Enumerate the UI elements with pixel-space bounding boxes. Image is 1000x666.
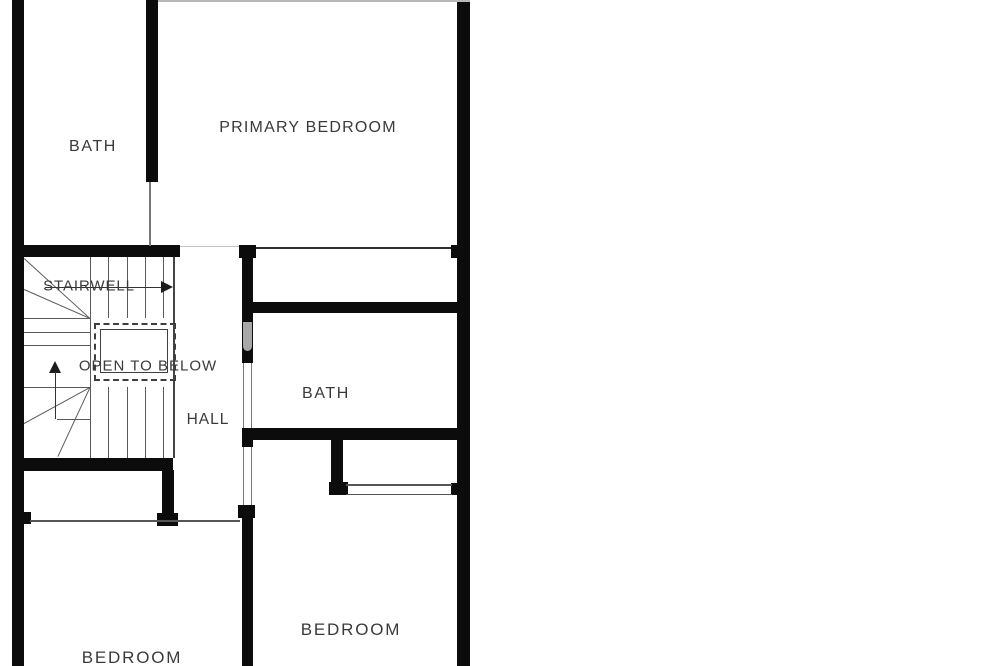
hall-primary-door-line xyxy=(180,246,239,247)
top-wall-remnant xyxy=(146,0,470,2)
wall-bedroom-right-jamb xyxy=(451,483,461,495)
hall-opening-line-b xyxy=(251,447,252,505)
stair-tread xyxy=(127,387,128,458)
wall-closet-stub xyxy=(331,440,343,484)
stair-tread xyxy=(24,387,90,388)
wall-center-lower xyxy=(242,505,253,666)
hall-opening-line-a xyxy=(243,447,244,505)
wall-bath-upper-divider xyxy=(146,0,158,182)
stair-direction-stem xyxy=(55,372,57,419)
watermark-artifact xyxy=(243,322,252,351)
floor-plan: BATH PRIMARY BEDROOM STAIRWELL OPEN TO B… xyxy=(0,0,1000,666)
stair-tread xyxy=(24,345,90,346)
room-label-open-to-below: OPEN TO BELOW xyxy=(79,358,217,375)
bath-lower-door-line-a xyxy=(243,363,244,428)
room-label-primary-bedroom: PRIMARY BEDROOM xyxy=(219,119,396,137)
bath-upper-opening-line xyxy=(149,182,151,246)
bath-lower-door-line-b xyxy=(251,363,252,428)
stair-tread xyxy=(108,387,109,458)
bedroom-right-opening-line-b xyxy=(346,494,452,496)
bedroom-right-opening-line-a xyxy=(346,484,452,486)
room-label-bath-upper: BATH xyxy=(69,138,117,156)
room-label-stairwell: STAIRWELL xyxy=(43,278,135,295)
wall-bath-lower-top xyxy=(242,302,470,313)
stair-tread xyxy=(24,332,90,333)
wall-bedroom-left-stub xyxy=(24,512,31,524)
stair-tread xyxy=(145,387,146,458)
stair-tread xyxy=(163,387,164,458)
room-label-bedroom-right: BEDROOM xyxy=(301,620,401,640)
room-label-hall: HALL xyxy=(187,411,230,429)
wall-primary-opening-cap-right xyxy=(451,245,470,258)
primary-opening-line xyxy=(256,247,451,249)
room-label-bedroom-left: BEDROOM xyxy=(82,648,182,666)
room-label-bath-lower: BATH xyxy=(302,385,350,403)
stair-direction-right-arrow-icon xyxy=(161,281,173,293)
wall-bath-lower-bottom xyxy=(242,428,470,440)
exterior-wall-left xyxy=(12,0,24,666)
wall-stairwell-bottom xyxy=(12,458,173,471)
bedroom-left-opening-line xyxy=(30,520,240,522)
stair-winder-line xyxy=(57,387,90,456)
wall-stairwell-top xyxy=(12,245,180,257)
wall-hall-vertical xyxy=(162,470,174,516)
exterior-wall-right xyxy=(457,0,470,666)
stair-tread xyxy=(24,318,90,319)
